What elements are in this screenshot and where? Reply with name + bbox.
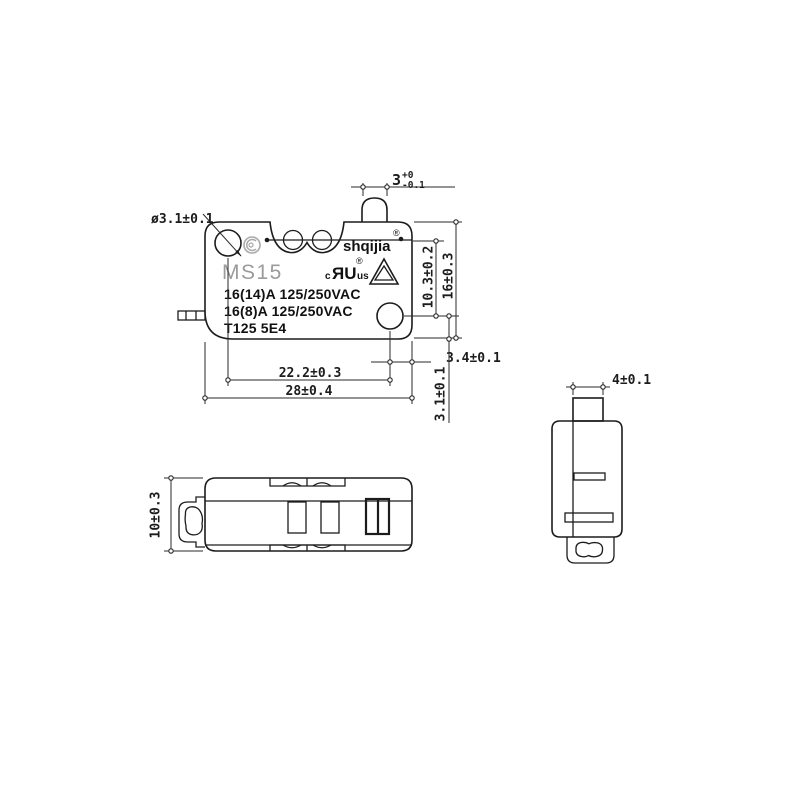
- brand-label: shqijia: [343, 238, 391, 255]
- ul-c: c: [325, 271, 331, 282]
- dim-height-label: 16±0.3: [442, 253, 457, 300]
- rating-line-3: T125 5E4: [224, 320, 286, 336]
- dim-hole-diameter: ø3.1±0.1: [151, 212, 242, 257]
- ul-recognized-mark-icon: c ЯU ® us: [325, 256, 369, 283]
- left-terminal: [178, 311, 205, 320]
- ul-ru: ЯU: [332, 264, 357, 283]
- ul-us: us: [357, 271, 369, 282]
- side-terminal-tab-1: [574, 473, 605, 480]
- plunger-button: [362, 198, 387, 222]
- dim-plunger-width: 3 +0 -0.1: [351, 170, 455, 196]
- dim-plunger-nominal: 3: [392, 171, 401, 189]
- rating-line-1: 16(14)A 125/250VAC: [224, 286, 361, 302]
- dim-hole-to-bottom-label: 3.1±0.1: [434, 366, 449, 421]
- dim-hole-to-bottom-edge: 3.1±0.1: [434, 314, 452, 423]
- rivet-dot-left: [265, 238, 270, 243]
- bottom-bottom-notches: [270, 545, 345, 551]
- dim-hole-spacing-label: 22.2±0.3: [279, 366, 342, 381]
- terminal-slot-2: [321, 502, 339, 533]
- bottom-view: 10±0.3: [149, 476, 413, 553]
- drawing-canvas: c ЯU ® us MS15 16(14)A 125/250VAC 16(8)A…: [0, 0, 800, 800]
- dim-hole-diameter-label: ø3.1±0.1: [151, 212, 214, 227]
- triangle-cert-mark-icon: [370, 259, 398, 284]
- mounting-hole-bottom-right: [377, 303, 403, 329]
- dim-hole-to-right-label: 3.4±0.1: [446, 351, 501, 366]
- dim-plunger-thickness-label: 4±0.1: [612, 373, 651, 388]
- bottom-left-terminal: [179, 497, 205, 547]
- side-body-outline: [552, 421, 622, 537]
- dim-length-label: 28±0.4: [286, 384, 333, 399]
- side-plunger: [573, 398, 603, 421]
- model-label: MS15: [222, 261, 283, 284]
- dim-plunger-lower-tol: -0.1: [402, 180, 425, 191]
- side-bottom-terminal: [567, 537, 614, 563]
- microswitch-technical-drawing: c ЯU ® us MS15 16(14)A 125/250VAC 16(8)A…: [0, 0, 800, 800]
- side-view: 4±0.1: [552, 373, 651, 563]
- terminal-slot-3: [366, 499, 389, 534]
- terminal-slot-1: [288, 502, 306, 533]
- bottom-top-notches: [270, 478, 345, 486]
- ul-reg: ®: [356, 256, 363, 266]
- ccc-logo-icon: [244, 237, 260, 253]
- dim-plunger-thickness: 4±0.1: [566, 373, 651, 395]
- side-terminal-tab-2: [565, 513, 613, 522]
- rating-line-2: 16(8)A 125/250VAC: [224, 303, 353, 319]
- bottom-body-outline: [205, 478, 412, 551]
- brand-reg-mark: ®: [393, 228, 400, 238]
- dim-slot-to-hole-label: 10.3±0.2: [422, 246, 437, 309]
- dim-body-width-label: 10±0.3: [149, 492, 164, 539]
